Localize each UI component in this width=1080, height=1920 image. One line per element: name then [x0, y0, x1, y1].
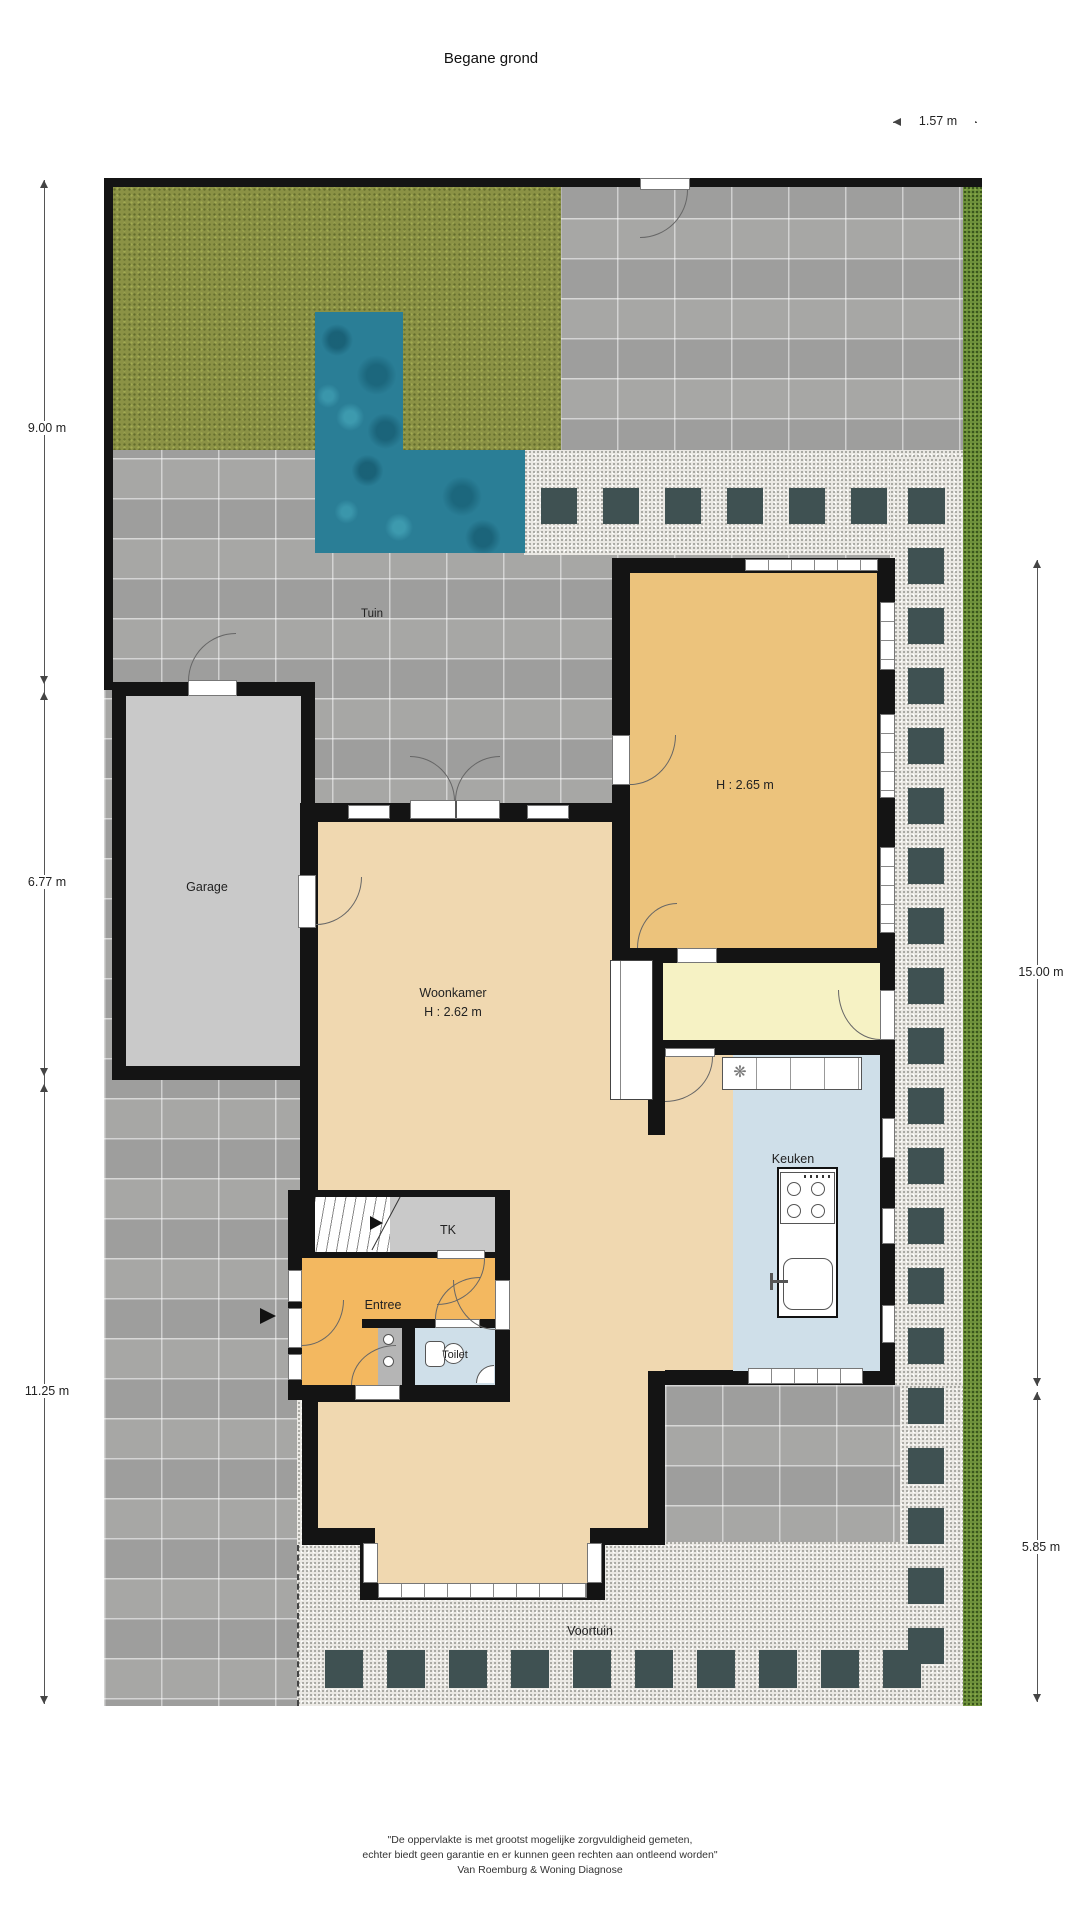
- garden-tiles-bottom-row: [325, 1650, 945, 1688]
- burner-icon: [811, 1182, 825, 1196]
- hob-symbol-icon: ❋: [724, 1062, 756, 1086]
- dimension-left-3: 11.25 m: [11, 1384, 83, 1398]
- dining-door: [355, 1385, 400, 1400]
- bedroom-window-top: [745, 559, 878, 571]
- arrow-up-icon: [1033, 560, 1041, 568]
- living-window-right: [527, 805, 569, 819]
- footer-disclaimer: "De oppervlakte is met grootst mogelijke…: [0, 1833, 1080, 1878]
- garden-tiles-top-row: [541, 488, 945, 524]
- arrow-down-icon: [1033, 1378, 1041, 1386]
- floorplan-canvas: Begane grond 1.57 m 9.00 m 6.77 m 11.25 …: [0, 0, 1080, 1920]
- arrow-down-icon: [40, 676, 48, 684]
- label-bedroom-height: H : 2.65 m: [665, 778, 825, 792]
- arrow-up-icon: [40, 180, 48, 188]
- bay-floor: [375, 1528, 590, 1583]
- label-woonkamer: Woonkamer: [373, 986, 533, 1000]
- pool-lower: [315, 450, 525, 553]
- label-toilet: Toilet: [415, 1349, 495, 1361]
- page-title: Begane grond: [391, 50, 591, 67]
- entree-window-1: [288, 1270, 302, 1302]
- boundary-wall-top: [104, 178, 982, 187]
- kitchen-window-right-3: [882, 1305, 895, 1343]
- corridor-opening: [648, 1135, 665, 1371]
- pantry-door-right: [880, 990, 895, 1040]
- entree-window-2: [288, 1354, 302, 1380]
- label-woonkamer-height: H : 2.62 m: [373, 1005, 533, 1019]
- arrow-left-icon: [893, 118, 901, 126]
- property-boundary-dashed: [297, 1545, 299, 1706]
- french-doors: [410, 800, 500, 819]
- label-garage: Garage: [157, 880, 257, 894]
- hall-door: [437, 1250, 485, 1259]
- arrow-up-icon: [1033, 1392, 1041, 1400]
- bedroom-window-right-3: [880, 847, 895, 933]
- garage-side-door: [298, 875, 316, 928]
- footer-line-1: "De oppervlakte is met grootst mogelijke…: [0, 1833, 1080, 1848]
- dimension-top-label: 1.57 m: [901, 114, 975, 128]
- label-tk: TK: [428, 1223, 468, 1237]
- garden-tiles-right-column: [908, 488, 944, 1688]
- toilet-wall-left: [402, 1328, 415, 1385]
- control-dots-icon: [804, 1175, 830, 1178]
- cooktop-icon: [780, 1172, 835, 1224]
- corridor-door: [665, 1048, 715, 1057]
- site-plan: ❋: [104, 178, 982, 1706]
- arrow-up-icon: [40, 692, 48, 700]
- bedroom-window-right-1: [880, 602, 895, 670]
- paving-patch-right: [665, 1385, 900, 1542]
- label-voortuin: Voortuin: [540, 1624, 640, 1638]
- burner-icon: [787, 1204, 801, 1218]
- sink-icon: [783, 1258, 833, 1310]
- stair-direction-arrow-icon: [370, 1216, 383, 1230]
- bedroom-door-left: [612, 735, 630, 785]
- arrow-down-icon: [40, 1696, 48, 1704]
- tall-cabinet: [610, 960, 653, 1100]
- burner-icon: [811, 1204, 825, 1218]
- hedge-strip: [963, 182, 982, 1706]
- dimension-left-2: 6.77 m: [14, 875, 80, 889]
- fixture-icon: [383, 1334, 394, 1345]
- corridor-floor: [665, 1055, 733, 1370]
- footer-line-3: Van Roemburg & Woning Diagnose: [0, 1863, 1080, 1878]
- bay-window-left: [363, 1543, 378, 1583]
- kitchen-window-right-1: [882, 1118, 895, 1158]
- garage-gate: [188, 680, 237, 696]
- kitchen-window-right-2: [882, 1208, 895, 1244]
- bedroom-door-bottom: [677, 948, 717, 963]
- dimension-right-1: 15.00 m: [1002, 965, 1080, 979]
- kitchen-window-bottom: [748, 1368, 863, 1384]
- label-keuken: Keuken: [753, 1152, 833, 1166]
- entrance-arrow-icon: [260, 1308, 276, 1324]
- arrow-down-icon: [1033, 1694, 1041, 1702]
- bay-window-front: [378, 1583, 587, 1598]
- front-door: [288, 1308, 302, 1348]
- footer-line-2: echter biedt geen garantie en er kunnen …: [0, 1848, 1080, 1863]
- bay-window-right: [587, 1543, 602, 1583]
- dimension-left-1: 9.00 m: [14, 421, 80, 435]
- living-dining-opening: [510, 1378, 648, 1404]
- label-tuin: Tuin: [342, 608, 402, 620]
- bedroom-window-right-2: [880, 714, 895, 798]
- burner-icon: [787, 1182, 801, 1196]
- tap-icon: [770, 1273, 773, 1290]
- eetkamer-floor: [318, 1402, 648, 1528]
- dimension-right-2: 5.85 m: [1002, 1540, 1080, 1554]
- living-window-left: [348, 805, 390, 819]
- boundary-wall-left: [104, 178, 113, 690]
- pool-upper: [315, 312, 403, 452]
- garden-gate: [640, 178, 690, 190]
- arrow-down-icon: [40, 1068, 48, 1076]
- dimension-line-left: [44, 180, 45, 1704]
- entree-living-door: [495, 1280, 510, 1330]
- label-entree: Entree: [333, 1298, 433, 1312]
- arrow-up-icon: [40, 1084, 48, 1092]
